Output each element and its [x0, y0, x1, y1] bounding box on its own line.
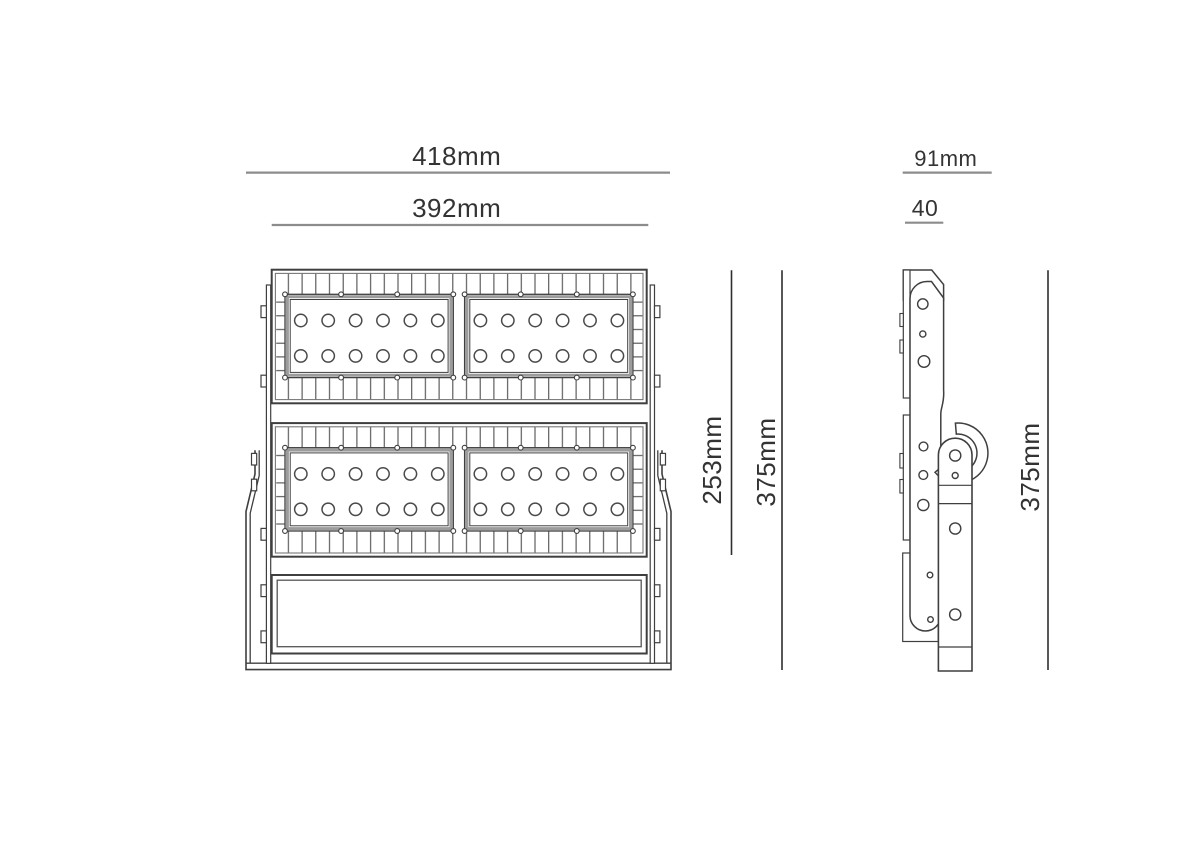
- front-view: [246, 270, 671, 670]
- dimension-drawing: 418mm 392mm 91mm 40 253mm 375mm 375mm: [0, 0, 1191, 842]
- dimension-label-side-overall-depth: 91mm: [886, 147, 1006, 171]
- dimension-label-front-overall-width: 418mm: [397, 142, 517, 170]
- led-module-row-bottom: [272, 423, 647, 557]
- dimension-label-front-overall-height: 375mm: [752, 392, 780, 532]
- dimension-label-side-overall-height: 375mm: [1016, 397, 1044, 537]
- dimension-label-front-led-section-height: 253mm: [698, 390, 726, 530]
- driver-box: [272, 575, 647, 654]
- dimension-label-side-body-depth: 40: [865, 196, 985, 220]
- technical-drawing: [0, 0, 1191, 842]
- side-view: [900, 270, 988, 671]
- dimension-label-front-body-width: 392mm: [397, 194, 517, 222]
- side-body-strip-middle: [903, 415, 910, 540]
- side-body-strip-top: [903, 270, 910, 398]
- side-body-tabs: [900, 314, 903, 494]
- led-module-row-top: [272, 270, 647, 404]
